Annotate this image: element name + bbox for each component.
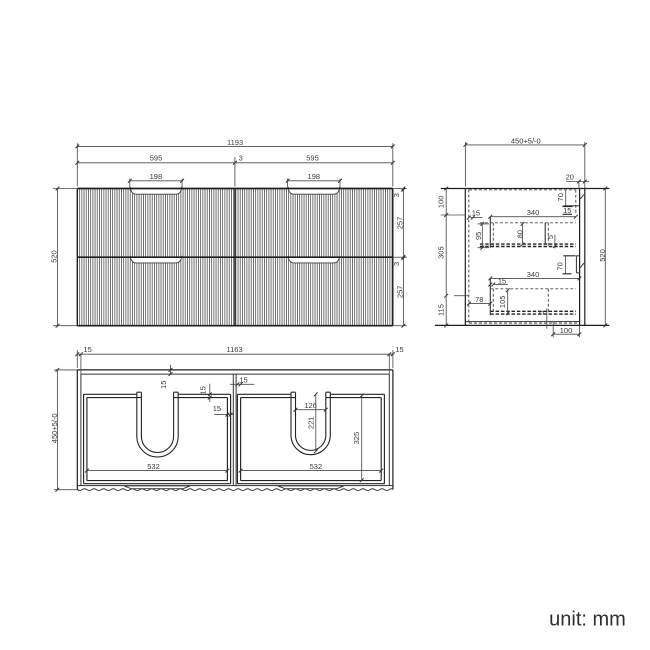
svg-text:70: 70 — [556, 262, 565, 270]
svg-text:70: 70 — [556, 193, 565, 201]
svg-text:100: 100 — [560, 326, 573, 335]
svg-text:340: 340 — [527, 208, 540, 217]
svg-text:1193: 1193 — [227, 138, 243, 147]
svg-text:198: 198 — [150, 172, 163, 181]
svg-text:15: 15 — [563, 206, 571, 215]
svg-text:221: 221 — [307, 417, 316, 430]
svg-text:80: 80 — [515, 230, 524, 238]
svg-text:1163: 1163 — [227, 345, 243, 354]
svg-text:unit: mm: unit: mm — [549, 609, 626, 631]
svg-text:15: 15 — [395, 345, 403, 354]
svg-text:595: 595 — [306, 154, 319, 163]
svg-text:305: 305 — [437, 246, 446, 259]
svg-text:3: 3 — [392, 193, 401, 197]
svg-text:257: 257 — [395, 217, 404, 230]
svg-text:78: 78 — [475, 295, 483, 304]
svg-text:95: 95 — [474, 232, 483, 240]
svg-text:126: 126 — [304, 401, 317, 410]
svg-text:5: 5 — [539, 310, 546, 314]
svg-text:340: 340 — [527, 270, 540, 279]
svg-text:3: 3 — [239, 154, 243, 163]
svg-text:115: 115 — [436, 304, 445, 316]
svg-text:520: 520 — [598, 249, 607, 262]
svg-text:450+5/-0: 450+5/-0 — [511, 136, 541, 145]
svg-text:198: 198 — [308, 172, 321, 181]
svg-text:3: 3 — [392, 262, 401, 266]
svg-text:15: 15 — [83, 345, 91, 354]
svg-text:520: 520 — [49, 250, 58, 263]
svg-text:450+5/-0: 450+5/-0 — [50, 413, 59, 443]
svg-text:595: 595 — [150, 154, 163, 163]
svg-text:15: 15 — [213, 404, 221, 413]
svg-text:15: 15 — [159, 381, 168, 389]
svg-text:15: 15 — [198, 386, 207, 394]
svg-text:5: 5 — [546, 235, 555, 239]
svg-text:15: 15 — [472, 209, 480, 218]
svg-text:20: 20 — [566, 173, 574, 182]
svg-text:532: 532 — [147, 462, 160, 471]
svg-text:100: 100 — [436, 196, 445, 209]
svg-text:15: 15 — [498, 276, 506, 285]
svg-text:532: 532 — [310, 462, 323, 471]
svg-text:325: 325 — [352, 432, 361, 445]
svg-text:105: 105 — [498, 296, 507, 309]
svg-text:15: 15 — [239, 375, 247, 384]
svg-text:257: 257 — [395, 286, 404, 299]
